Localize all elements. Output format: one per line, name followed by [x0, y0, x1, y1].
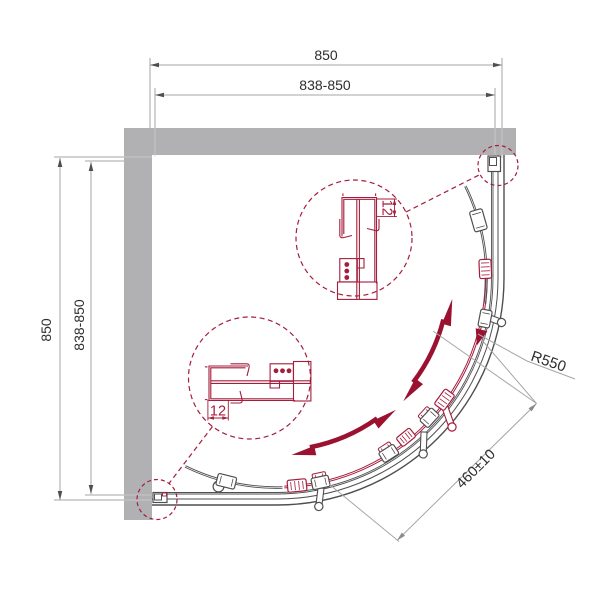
svg-text:12: 12 [379, 200, 395, 216]
svg-text:460±10: 460±10 [453, 446, 498, 491]
svg-text:838-850: 838-850 [299, 77, 351, 93]
svg-text:838-850: 838-850 [71, 299, 87, 351]
svg-text:850: 850 [38, 318, 54, 342]
svg-text:12: 12 [210, 404, 226, 420]
svg-text:850: 850 [314, 47, 338, 63]
svg-text:R550: R550 [529, 348, 568, 376]
